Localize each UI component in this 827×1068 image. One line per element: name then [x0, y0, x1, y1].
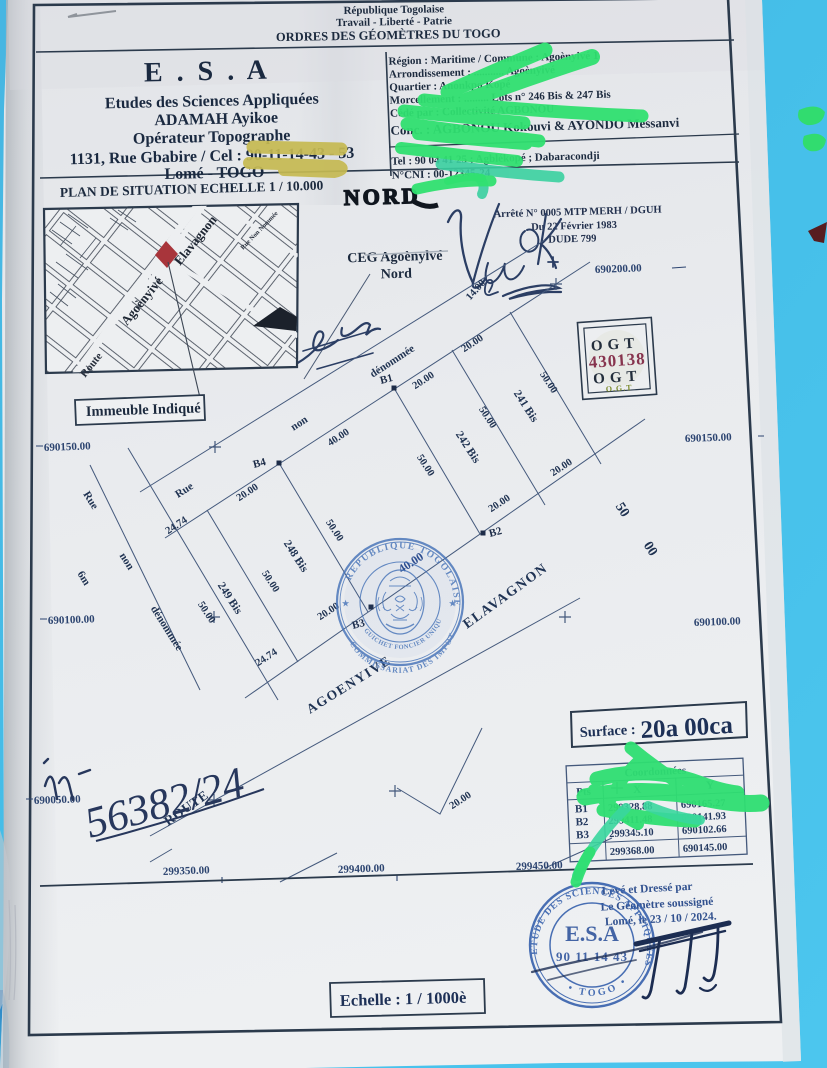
svg-text:20a 00ca: 20a 00ca	[640, 712, 734, 744]
svg-text:O.G.T: O.G.T	[605, 383, 632, 394]
svg-text:B2: B2	[575, 816, 589, 829]
svg-text:90 11 14 43: 90 11 14 43	[556, 949, 628, 964]
svg-text:299368.00: 299368.00	[610, 845, 655, 858]
svg-text:690145.00: 690145.00	[683, 842, 728, 855]
svg-text:Surface :: Surface :	[579, 722, 636, 741]
svg-text:690200.00: 690200.00	[595, 262, 643, 276]
svg-text:299350.00: 299350.00	[163, 864, 211, 878]
svg-text:690150.00: 690150.00	[685, 431, 733, 445]
svg-text:299345.10: 299345.10	[609, 827, 654, 840]
svg-text:NORD: NORD	[343, 183, 420, 210]
svg-text:690100.00: 690100.00	[48, 613, 96, 627]
svg-text:E.S.A: E.S.A	[565, 921, 619, 946]
svg-text:B3: B3	[576, 829, 590, 842]
svg-text:DUDE 799: DUDE 799	[548, 233, 596, 245]
svg-text:690100.00: 690100.00	[694, 615, 742, 629]
svg-text:Echelle : 1 / 1000è: Echelle : 1 / 1000è	[340, 988, 467, 1010]
svg-text:★: ★	[342, 599, 350, 608]
svg-text:★: ★	[449, 599, 457, 608]
svg-text:299400.00: 299400.00	[338, 862, 386, 876]
svg-text:E . S . A: E . S . A	[144, 55, 271, 89]
svg-text:690150.00: 690150.00	[44, 440, 92, 454]
svg-text:Nord: Nord	[381, 267, 413, 283]
svg-text:ADAMAH Ayikoe: ADAMAH Ayikoe	[154, 109, 278, 129]
